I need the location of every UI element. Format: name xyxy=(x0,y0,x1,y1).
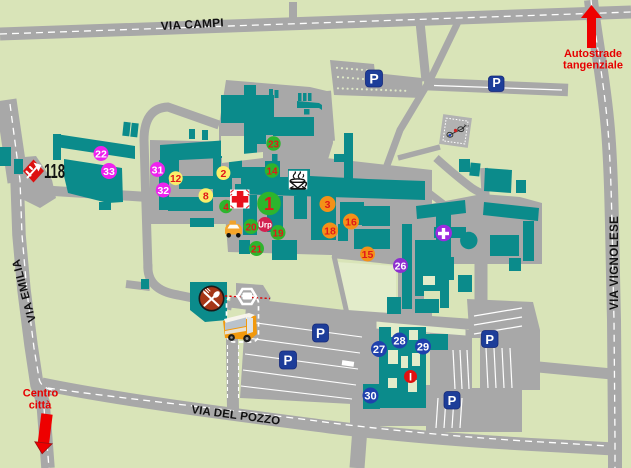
svg-text:30: 30 xyxy=(364,391,376,403)
svg-text:118: 118 xyxy=(44,161,65,183)
svg-text:32: 32 xyxy=(157,185,169,197)
svg-text:33: 33 xyxy=(103,166,115,178)
svg-text:1: 1 xyxy=(264,194,274,214)
svg-text:P: P xyxy=(492,76,500,90)
svg-text:Urp: Urp xyxy=(258,221,272,230)
svg-text:22: 22 xyxy=(95,148,107,160)
svg-text:3: 3 xyxy=(325,199,331,211)
svg-text:31: 31 xyxy=(152,164,164,176)
svg-text:20: 20 xyxy=(245,222,257,233)
svg-text:P: P xyxy=(485,332,494,347)
svg-text:21: 21 xyxy=(251,244,263,255)
svg-text:2: 2 xyxy=(220,168,226,180)
svg-text:15: 15 xyxy=(362,249,374,261)
svg-text:27: 27 xyxy=(373,344,385,356)
svg-text:4: 4 xyxy=(223,202,229,213)
svg-text:I: I xyxy=(409,372,412,384)
svg-text:14: 14 xyxy=(266,166,278,177)
svg-text:19: 19 xyxy=(272,228,284,239)
svg-text:23: 23 xyxy=(268,139,280,150)
svg-text:tangenziale: tangenziale xyxy=(563,60,623,72)
svg-text:16: 16 xyxy=(345,216,357,228)
svg-text:VIA VIGNOLESE: VIA VIGNOLESE xyxy=(609,216,621,310)
svg-text:8: 8 xyxy=(203,190,209,202)
svg-text:P: P xyxy=(369,71,378,87)
svg-text:Autostrade: Autostrade xyxy=(564,48,622,60)
svg-text:29: 29 xyxy=(417,342,429,354)
svg-text:P: P xyxy=(448,393,457,408)
svg-text:P: P xyxy=(283,353,292,368)
svg-text:12: 12 xyxy=(170,174,182,185)
svg-text:18: 18 xyxy=(324,225,336,237)
svg-text:28: 28 xyxy=(393,336,405,348)
svg-text:Centro: Centro xyxy=(23,388,59,400)
svg-text:P: P xyxy=(316,326,325,341)
svg-text:26: 26 xyxy=(395,260,407,272)
svg-text:città: città xyxy=(29,400,53,412)
